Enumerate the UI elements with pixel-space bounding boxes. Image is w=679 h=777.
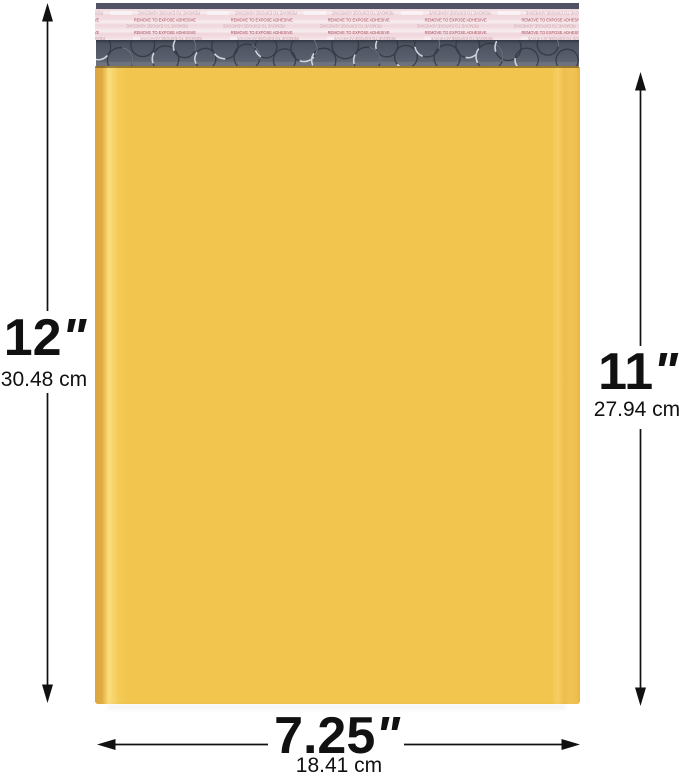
svg-text:REMOVE TO EXPOSE ADHESIVE: REMOVE TO EXPOSE ADHESIVE: [231, 30, 293, 35]
svg-text:REMOVE TO EXPOSE ADHESIVE: REMOVE TO EXPOSE ADHESIVE: [328, 30, 390, 35]
svg-text:REMOVE TO EXPOSE ADHESIVE: REMOVE TO EXPOSE ADHESIVE: [328, 17, 390, 22]
svg-text:REMOVE TO EXPOSE ADHESIVE: REMOVE TO EXPOSE ADHESIVE: [425, 30, 487, 35]
svg-text:REMOVE TO EXPOSE ADHESIVE: REMOVE TO EXPOSE ADHESIVE: [320, 23, 382, 28]
svg-text:REMOVE TO EXPOSE ADHESIVE: REMOVE TO EXPOSE ADHESIVE: [514, 23, 576, 28]
svg-text:REMOVE TO EXPOSE ADHESIVE: REMOVE TO EXPOSE ADHESIVE: [425, 17, 487, 22]
svg-text:REMOVE TO EXPOSE ADHESIVE: REMOVE TO EXPOSE ADHESIVE: [522, 30, 580, 35]
svg-text:REMOVE TO EXPOSE ADHESIVE: REMOVE TO EXPOSE ADHESIVE: [223, 23, 285, 28]
svg-text:REMOVE TO EXPOSE ADHESIVE: REMOVE TO EXPOSE ADHESIVE: [429, 11, 491, 16]
svg-text:REMOVE TO EXPOSE ADHESIVE: REMOVE TO EXPOSE ADHESIVE: [95, 17, 99, 22]
svg-text:REMOVE TO EXPOSE ADHESIVE: REMOVE TO EXPOSE ADHESIVE: [95, 30, 99, 35]
svg-text:REMOVE TO EXPOSE ADHESIVE: REMOVE TO EXPOSE ADHESIVE: [332, 11, 394, 16]
svg-text:REMOVE TO EXPOSE ADHESIVE: REMOVE TO EXPOSE ADHESIVE: [231, 17, 293, 22]
svg-text:REMOVE TO EXPOSE ADHESIVE: REMOVE TO EXPOSE ADHESIVE: [134, 17, 196, 22]
svg-text:REMOVE TO EXPOSE ADHESIVE: REMOVE TO EXPOSE ADHESIVE: [417, 23, 479, 28]
svg-text:REMOVE TO EXPOSE ADHESIVE: REMOVE TO EXPOSE ADHESIVE: [95, 11, 103, 16]
svg-text:REMOVE TO EXPOSE ADHESIVE: REMOVE TO EXPOSE ADHESIVE: [526, 11, 579, 16]
svg-text:REMOVE TO EXPOSE ADHESIVE: REMOVE TO EXPOSE ADHESIVE: [138, 11, 200, 16]
svg-text:REMOVE TO EXPOSE ADHESIVE: REMOVE TO EXPOSE ADHESIVE: [522, 17, 580, 22]
svg-text:REMOVE TO EXPOSE ADHESIVE: REMOVE TO EXPOSE ADHESIVE: [134, 30, 196, 35]
svg-text:REMOVE TO EXPOSE ADHESIVE: REMOVE TO EXPOSE ADHESIVE: [235, 11, 297, 16]
svg-text:REMOVE TO EXPOSE ADHESIVE: REMOVE TO EXPOSE ADHESIVE: [126, 23, 188, 28]
